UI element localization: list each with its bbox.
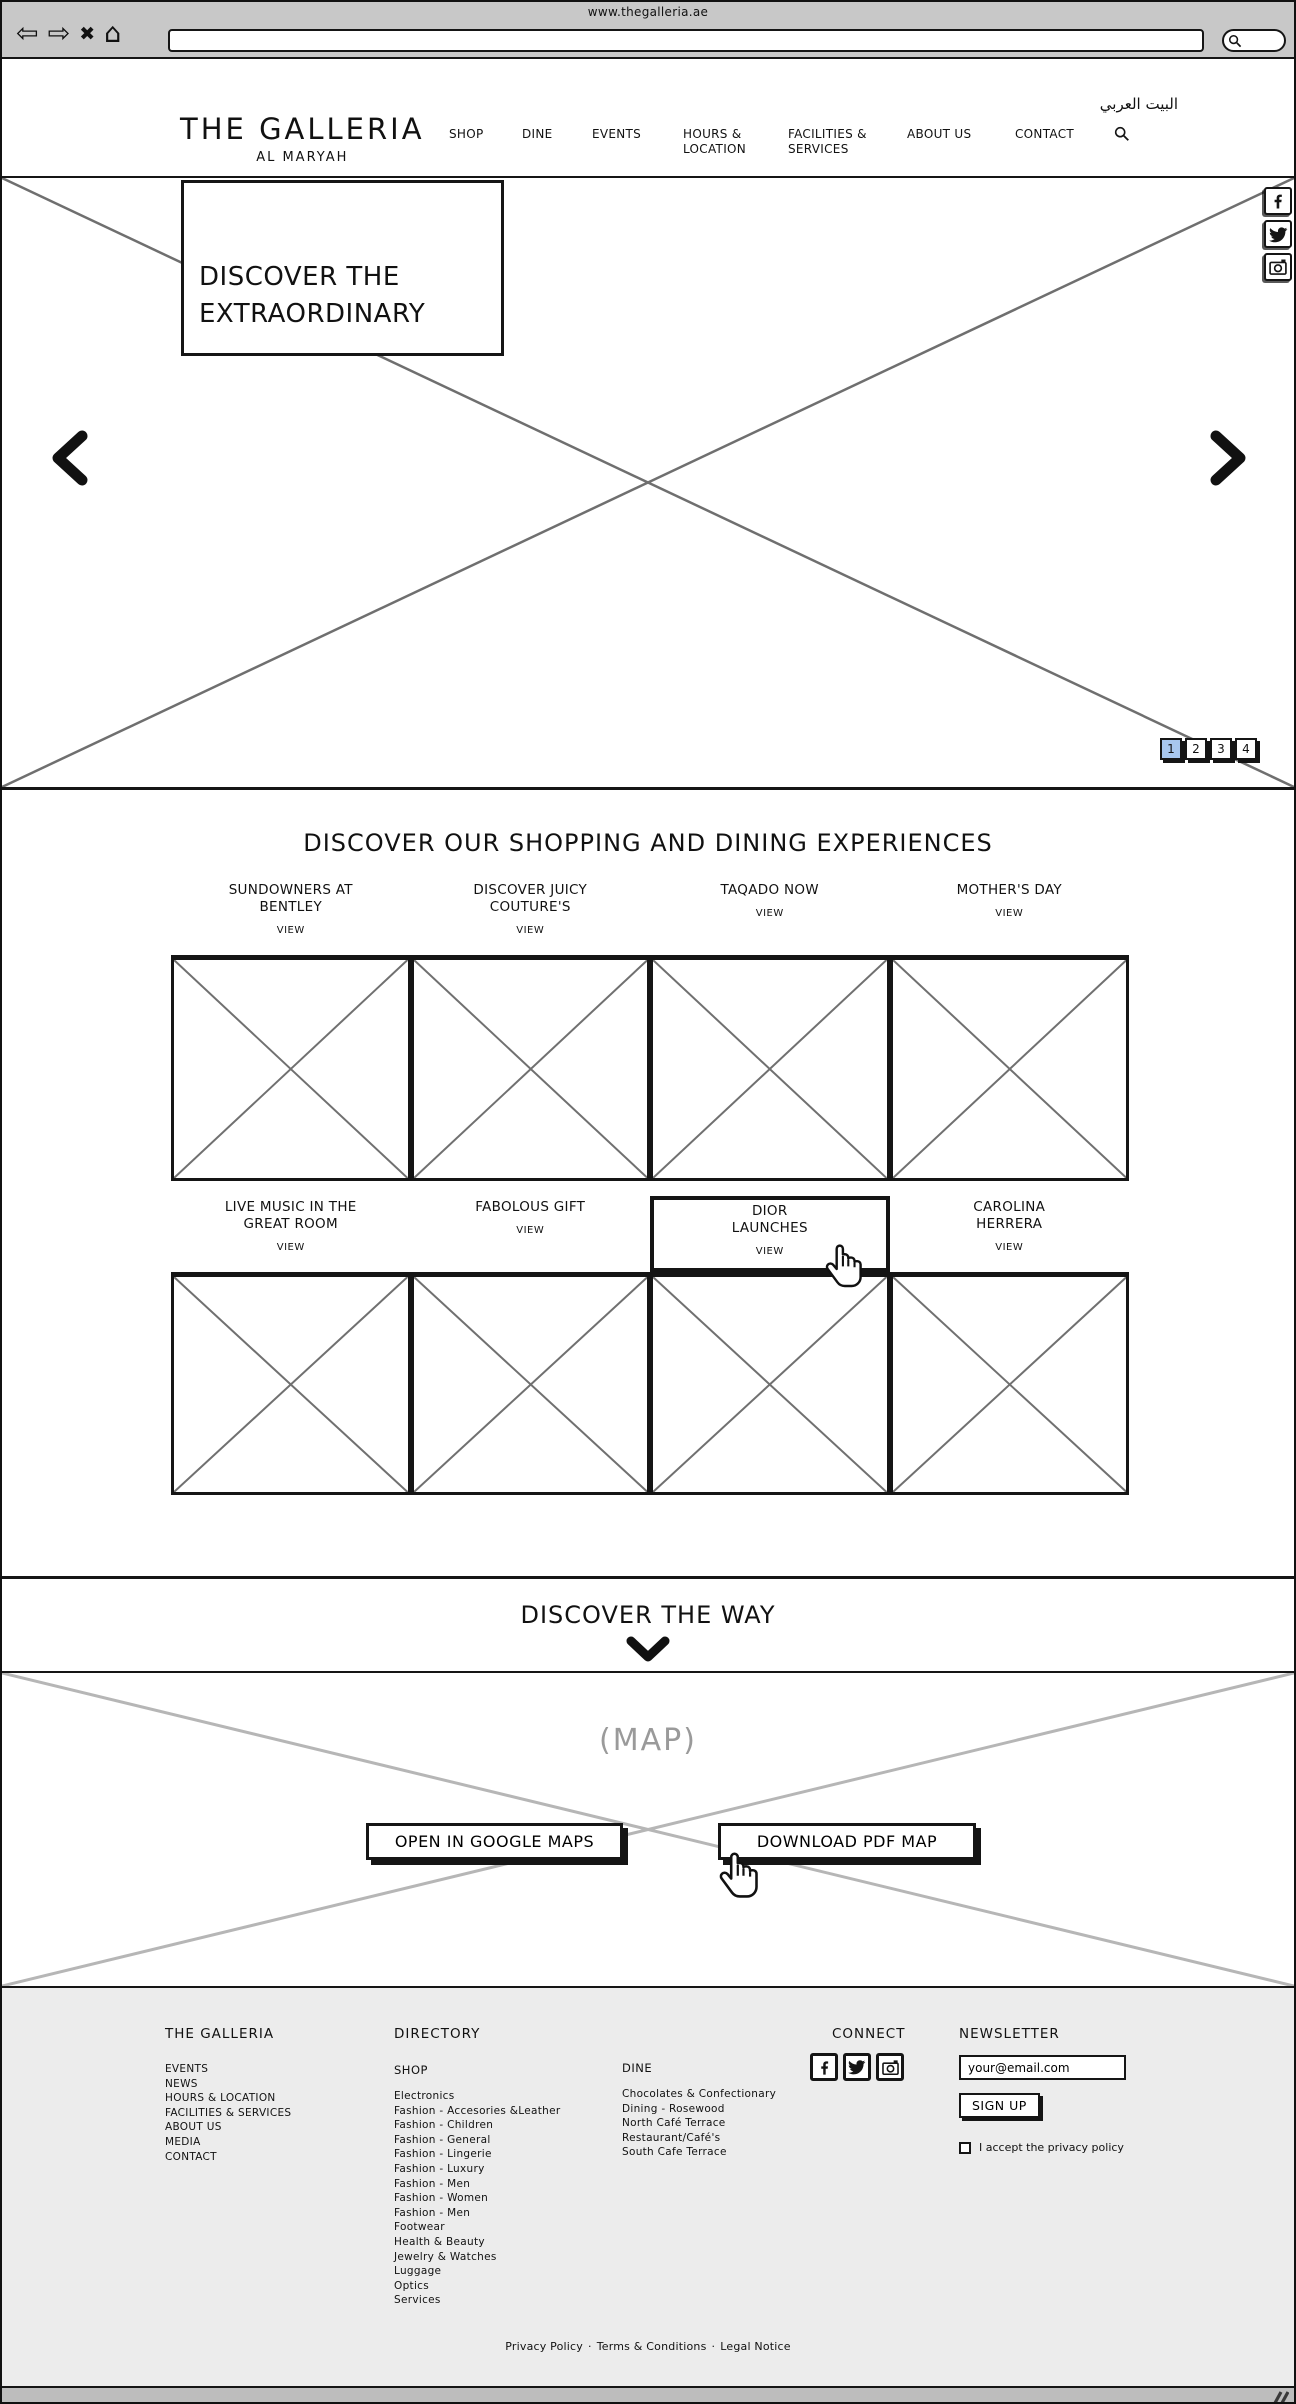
experience-card-dior-hovered[interactable]: DIORLAUNCHES VIEW xyxy=(650,1196,890,1495)
resize-grip-icon[interactable] xyxy=(1267,2391,1289,2404)
footer-link[interactable]: Fashion - Women xyxy=(394,2191,561,2206)
footer-col-dine: DINE Chocolates & ConfectionaryDining - … xyxy=(622,2061,776,2160)
language-switch-link[interactable]: البيت العربي xyxy=(1100,95,1178,113)
nav-label: ABOUT US xyxy=(907,127,971,142)
scroll-down-chevron-icon[interactable] xyxy=(625,1636,671,1664)
stop-icon[interactable]: ✖ xyxy=(79,19,95,49)
footer-shop-links: ElectronicsFashion - Accesories &Leather… xyxy=(394,2089,561,2308)
footer-link[interactable]: HOURS & LOCATION xyxy=(165,2091,291,2106)
experience-card-fabolous-gift[interactable]: FABOLOUS GIFT VIEW xyxy=(411,1196,651,1495)
map-placeholder-label: (MAP) xyxy=(2,1723,1294,1758)
card-image-placeholder xyxy=(411,955,651,1181)
footer-heading: NEWSLETTER xyxy=(959,2026,1149,2042)
browser-chrome: www.thegalleria.ae ⇦ ⇨ ✖ ⌂ xyxy=(2,2,1294,59)
carousel-pagination: 1 2 3 4 xyxy=(1160,738,1257,760)
carousel-prev-icon[interactable] xyxy=(46,430,92,486)
url-input[interactable] xyxy=(170,33,1202,52)
card-image-placeholder xyxy=(171,1272,411,1495)
footer-heading: CONNECT xyxy=(832,2026,905,2042)
experiences-section: DISCOVER OUR SHOPPING AND DINING EXPERIE… xyxy=(2,793,1294,1576)
logo-title: THE GALLERIA xyxy=(180,112,425,146)
header-search-icon[interactable] xyxy=(1113,125,1131,143)
footer-link[interactable]: Chocolates & Confectionary xyxy=(622,2087,776,2102)
footer-link[interactable]: South Cafe Terrace xyxy=(622,2145,776,2160)
browser-page-title: www.thegalleria.ae xyxy=(2,5,1294,19)
footer-subheading-shop[interactable]: SHOP xyxy=(394,2063,561,2077)
browser-nav-icons: ⇦ ⇨ ✖ ⌂ xyxy=(16,19,121,49)
site-header: THE GALLERIA AL MARYAH البيت العربي SHOP… xyxy=(2,59,1294,178)
footer-link[interactable]: Fashion - Luxury xyxy=(394,2162,561,2177)
nav-item-facilities-services[interactable]: FACILITIES & SERVICES xyxy=(788,127,867,157)
footer-link[interactable]: Fashion - Accesories &Leather xyxy=(394,2104,561,2119)
twitter-icon[interactable] xyxy=(1264,220,1292,248)
nav-label: FACILITIES & xyxy=(788,127,867,142)
separator: · xyxy=(712,2340,716,2353)
experience-card-sundowners[interactable]: SUNDOWNERS ATBENTLEY VIEW xyxy=(171,879,411,1181)
card-title: LIVE MUSIC IN THEGREAT ROOM xyxy=(171,1199,411,1233)
terms-conditions-link[interactable]: Terms & Conditions xyxy=(597,2340,707,2353)
browser-search-box[interactable] xyxy=(1222,29,1286,52)
experiences-title: DISCOVER OUR SHOPPING AND DINING EXPERIE… xyxy=(2,829,1294,857)
nav-item-events[interactable]: EVENTS xyxy=(592,127,641,142)
footer-link[interactable]: Fashion - Men xyxy=(394,2177,561,2192)
footer-link[interactable]: CONTACT xyxy=(165,2150,291,2165)
nav-item-about-us[interactable]: ABOUT US xyxy=(907,127,971,142)
experience-card-juicy-couture[interactable]: DISCOVER JUICYCOUTURE'S VIEW xyxy=(411,879,651,1181)
card-title: TAQADO NOW xyxy=(650,882,890,899)
footer-col-galleria: THE GALLERIA EVENTSNEWSHOURS & LOCATIONF… xyxy=(165,2026,291,2164)
footer-link[interactable]: Services xyxy=(394,2293,561,2308)
card-image-placeholder xyxy=(650,955,890,1181)
footer-col-connect: CONNECT xyxy=(810,2026,905,2081)
privacy-checkbox[interactable] xyxy=(959,2142,971,2154)
footer-heading: DIRECTORY xyxy=(394,2026,561,2042)
legal-notice-link[interactable]: Legal Notice xyxy=(720,2340,791,2353)
instagram-camera-icon[interactable] xyxy=(1264,253,1292,281)
footer-link[interactable]: Electronics xyxy=(394,2089,561,2104)
page-dot-1[interactable]: 1 xyxy=(1160,738,1182,760)
footer-link[interactable]: FACILITIES & SERVICES xyxy=(165,2106,291,2121)
view-link[interactable]: VIEW xyxy=(890,1242,1130,1253)
logo-subtitle: AL MARYAH xyxy=(180,150,425,165)
footer-heading: THE GALLERIA xyxy=(165,2026,291,2042)
nav-item-dine[interactable]: DINE xyxy=(522,127,553,142)
footer-subheading-dine[interactable]: DINE xyxy=(622,2061,776,2075)
home-icon[interactable]: ⌂ xyxy=(104,19,121,49)
experience-card-carolina-herrera[interactable]: CAROLINAHERRERA VIEW xyxy=(890,1196,1130,1495)
privacy-policy-link[interactable]: Privacy Policy xyxy=(505,2340,583,2353)
nav-label: SERVICES xyxy=(788,142,867,157)
footer-link[interactable]: North Café Terrace xyxy=(622,2116,776,2131)
map-section: (MAP) OPEN IN GOOGLE MAPS DOWNLOAD PDF M… xyxy=(2,1673,1294,1986)
footer-link[interactable]: ABOUT US xyxy=(165,2120,291,2135)
newsletter-email-input[interactable] xyxy=(961,2058,1124,2079)
hero-headline-line: EXTRAORDINARY xyxy=(199,296,425,333)
footer-link[interactable]: Fashion - General xyxy=(394,2133,561,2148)
footer-link[interactable]: Optics xyxy=(394,2279,561,2294)
page-dot-4[interactable]: 4 xyxy=(1235,738,1257,760)
card-title: SUNDOWNERS ATBENTLEY xyxy=(171,882,411,916)
card-title: FABOLOUS GIFT xyxy=(411,1199,651,1216)
newsletter-signup-button[interactable]: SIGN UP xyxy=(959,2093,1040,2118)
browser-status-bar xyxy=(2,2386,1294,2404)
twitter-icon[interactable] xyxy=(843,2053,871,2081)
card-image-placeholder xyxy=(890,1272,1130,1495)
view-link[interactable]: VIEW xyxy=(654,1246,886,1257)
view-link[interactable]: VIEW xyxy=(890,908,1130,919)
facebook-icon[interactable] xyxy=(1264,187,1292,215)
view-link[interactable]: VIEW xyxy=(171,925,411,936)
nav-label: EVENTS xyxy=(592,127,641,142)
hero-social-rail xyxy=(1264,187,1292,281)
hero-carousel: DISCOVER THE EXTRAORDINARY xyxy=(2,178,1294,790)
footer-link[interactable]: Restaurant/Café's xyxy=(622,2131,776,2146)
footer-legal-links: Privacy Policy·Terms & Conditions·Legal … xyxy=(2,2340,1294,2353)
footer-link[interactable]: Fashion - Lingerie xyxy=(394,2147,561,2162)
footer-link[interactable]: EVENTS xyxy=(165,2062,291,2077)
nav-label: HOURS & xyxy=(683,127,746,142)
nav-label: LOCATION xyxy=(683,142,746,157)
search-icon xyxy=(1228,34,1242,48)
card-title: MOTHER'S DAY xyxy=(890,882,1130,899)
nav-item-shop[interactable]: SHOP xyxy=(449,127,484,142)
card-image-placeholder xyxy=(650,1272,890,1495)
footer-galleria-links: EVENTSNEWSHOURS & LOCATIONFACILITIES & S… xyxy=(165,2062,291,2164)
card-image-placeholder xyxy=(171,955,411,1181)
back-icon[interactable]: ⇦ xyxy=(16,19,39,49)
hero-headline-box: DISCOVER THE EXTRAORDINARY xyxy=(181,180,504,356)
footer-col-newsletter: NEWSLETTER SIGN UP I accept the privacy … xyxy=(959,2026,1149,2154)
card-title: DIORLAUNCHES xyxy=(654,1203,886,1237)
way-band: DISCOVER THE WAY xyxy=(2,1576,1294,1673)
facebook-icon[interactable] xyxy=(810,2053,838,2081)
footer-link[interactable]: Fashion - Children xyxy=(394,2118,561,2133)
view-link[interactable]: VIEW xyxy=(411,925,651,936)
forward-icon[interactable]: ⇨ xyxy=(48,19,71,49)
instagram-camera-icon[interactable] xyxy=(876,2053,904,2081)
card-title: CAROLINAHERRERA xyxy=(890,1199,1130,1233)
experiences-row-1: SUNDOWNERS ATBENTLEY VIEW DISCOVER JUICY… xyxy=(171,879,1129,1181)
footer-link[interactable]: Footwear xyxy=(394,2220,561,2235)
map-image-placeholder xyxy=(2,1673,1294,1986)
view-link[interactable]: VIEW xyxy=(650,908,890,919)
experience-card-live-music[interactable]: LIVE MUSIC IN THEGREAT ROOM VIEW xyxy=(171,1196,411,1495)
way-title: DISCOVER THE WAY xyxy=(2,1601,1294,1629)
privacy-checkbox-label: I accept the privacy policy xyxy=(979,2141,1124,2154)
experience-card-mothers-day[interactable]: MOTHER'S DAY VIEW xyxy=(890,879,1130,1181)
nav-label: CONTACT xyxy=(1015,127,1074,142)
separator: · xyxy=(588,2340,592,2353)
newsletter-email-field[interactable] xyxy=(959,2055,1126,2080)
footer-link[interactable]: Luggage xyxy=(394,2264,561,2279)
footer-link[interactable]: Dining - Rosewood xyxy=(622,2102,776,2117)
card-image-placeholder xyxy=(411,1272,651,1495)
footer-link[interactable]: NEWS xyxy=(165,2077,291,2092)
experience-card-taqado[interactable]: TAQADO NOW VIEW xyxy=(650,879,890,1181)
footer-col-directory: DIRECTORY SHOP ElectronicsFashion - Acce… xyxy=(394,2026,561,2308)
download-pdf-map-button[interactable]: DOWNLOAD PDF MAP xyxy=(718,1823,976,1860)
card-image-placeholder xyxy=(890,955,1130,1181)
url-bar[interactable] xyxy=(168,29,1204,52)
nav-item-hours-location[interactable]: HOURS & LOCATION xyxy=(683,127,746,157)
site-logo[interactable]: THE GALLERIA AL MARYAH xyxy=(180,112,425,165)
view-link[interactable]: VIEW xyxy=(171,1242,411,1253)
footer-link[interactable]: Fashion - Men xyxy=(394,2206,561,2221)
page-dot-2[interactable]: 2 xyxy=(1185,738,1207,760)
footer-link[interactable]: MEDIA xyxy=(165,2135,291,2150)
nav-item-contact[interactable]: CONTACT xyxy=(1015,127,1074,142)
site-footer: THE GALLERIA EVENTSNEWSHOURS & LOCATIONF… xyxy=(2,1986,1294,2386)
footer-link[interactable]: Jewelry & Watches xyxy=(394,2250,561,2265)
footer-link[interactable]: Health & Beauty xyxy=(394,2235,561,2250)
card-title: DISCOVER JUICYCOUTURE'S xyxy=(411,882,651,916)
page-dot-3[interactable]: 3 xyxy=(1210,738,1232,760)
view-link[interactable]: VIEW xyxy=(411,1225,651,1236)
nav-label: SHOP xyxy=(449,127,484,142)
browser-window: www.thegalleria.ae ⇦ ⇨ ✖ ⌂ THE GALLERIA … xyxy=(0,0,1296,2404)
hero-headline-line: DISCOVER THE xyxy=(199,259,425,296)
footer-dine-links: Chocolates & ConfectionaryDining - Rosew… xyxy=(622,2087,776,2160)
open-google-maps-button[interactable]: OPEN IN GOOGLE MAPS xyxy=(366,1823,623,1860)
experiences-row-2: LIVE MUSIC IN THEGREAT ROOM VIEW FABOLOU… xyxy=(171,1196,1129,1495)
carousel-next-icon[interactable] xyxy=(1206,430,1252,486)
nav-label: DINE xyxy=(522,127,553,142)
